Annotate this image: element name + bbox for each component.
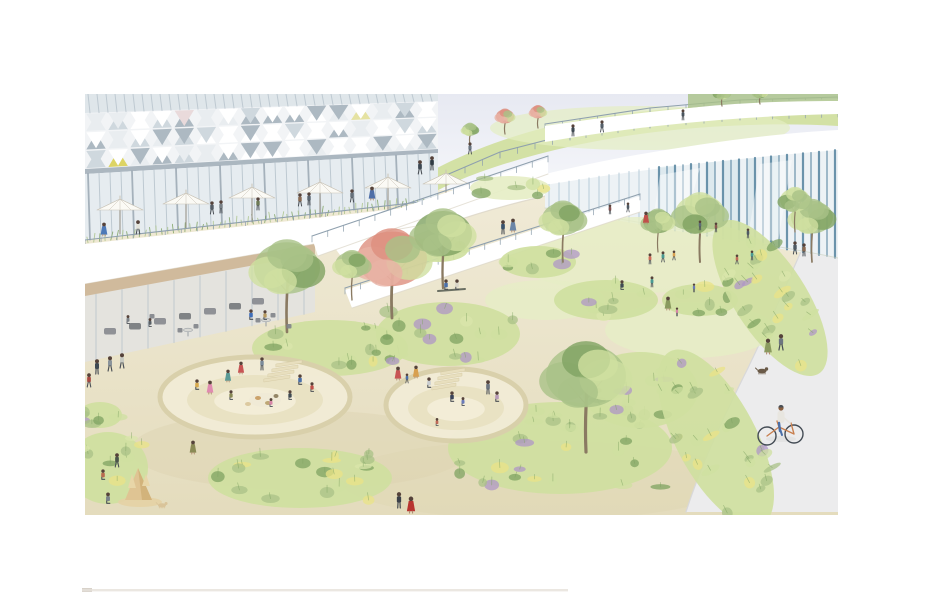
page-fold-line xyxy=(82,589,568,591)
person-head xyxy=(288,390,291,393)
person-body xyxy=(219,204,222,209)
person-head xyxy=(571,124,574,127)
grass-blade xyxy=(156,226,157,235)
grass-blade xyxy=(339,207,340,214)
cafe-chair xyxy=(256,318,261,323)
tree-foliage xyxy=(423,234,452,257)
person-body xyxy=(229,393,232,397)
tree-foliage xyxy=(468,124,476,130)
person-body xyxy=(673,253,676,257)
grass-blade xyxy=(82,406,83,412)
person-body xyxy=(427,381,431,386)
person-head xyxy=(682,109,685,112)
tree-foliage xyxy=(532,112,540,118)
person-head xyxy=(666,297,670,301)
tree-foliage xyxy=(340,265,357,278)
tree-foliage xyxy=(756,87,764,94)
person-body xyxy=(298,197,301,202)
tree-foliage xyxy=(797,218,818,234)
person-head xyxy=(802,243,805,246)
tree-foliage xyxy=(683,214,708,234)
picnic-item xyxy=(245,402,251,406)
person-body xyxy=(651,279,654,283)
tree-foliage xyxy=(759,88,766,93)
person-head xyxy=(779,334,783,338)
person-head xyxy=(120,353,124,357)
person-body xyxy=(682,112,685,116)
person-body xyxy=(751,253,754,257)
tree-foliage xyxy=(720,88,728,94)
person-body xyxy=(260,361,263,366)
tree-foliage xyxy=(503,110,512,117)
person-body xyxy=(249,313,253,318)
person-head xyxy=(450,391,453,394)
pit-floor-highlight xyxy=(427,397,485,421)
cafe-table xyxy=(184,328,193,332)
person-head xyxy=(310,382,313,385)
person-body xyxy=(106,496,110,501)
person-head xyxy=(226,370,229,373)
person-head xyxy=(444,279,447,282)
person-head xyxy=(409,497,414,502)
picnic-item xyxy=(255,396,261,400)
tree-foliage xyxy=(558,377,598,408)
interior-seat xyxy=(154,318,166,325)
person-body xyxy=(430,160,434,166)
person-head xyxy=(495,391,498,394)
person-body xyxy=(693,286,695,289)
person-body xyxy=(444,283,448,288)
grass-blade xyxy=(80,409,81,414)
person-head xyxy=(298,193,301,196)
person-body xyxy=(486,384,490,390)
person-body xyxy=(310,385,313,389)
person-body xyxy=(620,283,623,287)
tree-foliage xyxy=(716,93,724,99)
person-body xyxy=(210,205,213,210)
person-body xyxy=(101,473,105,478)
person-body xyxy=(715,225,718,229)
person-head xyxy=(676,308,678,310)
tree-foliage xyxy=(368,259,403,286)
cafe-chair xyxy=(271,313,276,318)
person-head xyxy=(270,398,273,401)
person-body xyxy=(802,247,805,252)
person-head xyxy=(600,120,603,123)
person-body xyxy=(397,496,401,502)
person-body xyxy=(115,457,119,463)
person-body xyxy=(108,360,112,366)
cyclist-jeans xyxy=(779,423,780,431)
tree-foliage xyxy=(785,200,800,212)
tree-foliage xyxy=(792,190,807,202)
person-head xyxy=(736,254,739,257)
person-body xyxy=(676,310,678,313)
interior-seat xyxy=(229,303,241,310)
person-body xyxy=(195,383,199,388)
dog-head xyxy=(165,502,168,505)
interior-seat xyxy=(104,328,116,335)
person-head xyxy=(427,377,430,380)
person-body xyxy=(263,313,266,317)
tree-foliage xyxy=(437,214,466,237)
person-body xyxy=(736,257,739,261)
tree-foliage xyxy=(695,198,720,218)
grass-blade xyxy=(99,234,100,242)
person-head xyxy=(662,251,665,254)
person-head xyxy=(468,142,471,145)
person-body xyxy=(793,245,796,250)
cafe-table xyxy=(262,318,271,322)
person-body xyxy=(288,393,291,397)
person-head xyxy=(501,220,505,224)
tree-foliage xyxy=(349,254,366,267)
person-head xyxy=(396,367,400,371)
person-head xyxy=(249,309,252,312)
tree-foliage xyxy=(536,107,544,113)
tree-foliage xyxy=(559,205,580,221)
tree-foliage xyxy=(655,212,670,224)
shrub-tuft xyxy=(78,406,90,418)
person-head xyxy=(370,187,374,191)
person-body xyxy=(662,254,665,258)
person-head xyxy=(102,223,106,227)
person-head xyxy=(260,357,263,360)
planting-bed xyxy=(208,448,392,508)
person-body xyxy=(609,207,612,211)
interior-seat xyxy=(179,313,191,320)
tree-foliage xyxy=(499,117,508,124)
person-body xyxy=(149,321,152,325)
grass-blade xyxy=(367,202,368,211)
person-body xyxy=(136,224,140,230)
person-head xyxy=(298,374,301,377)
cafe-chair xyxy=(178,328,183,333)
person-head xyxy=(651,276,654,279)
person-head xyxy=(673,250,676,253)
person-head xyxy=(747,228,750,231)
person-head xyxy=(239,362,242,365)
person-body xyxy=(649,256,652,260)
person-head xyxy=(455,279,458,282)
interior-seat xyxy=(204,308,216,315)
interior-seat xyxy=(252,298,264,305)
person-body xyxy=(298,378,302,383)
person-head xyxy=(418,160,422,164)
person-body xyxy=(462,400,465,404)
person-head xyxy=(699,220,702,223)
person-head xyxy=(511,219,515,223)
person-body xyxy=(747,231,750,235)
shrub-tuft xyxy=(72,444,90,452)
person-head xyxy=(609,204,612,207)
person-head xyxy=(136,220,140,224)
person-head xyxy=(436,418,439,421)
person-head xyxy=(195,379,198,382)
person-body xyxy=(95,363,99,369)
tree-foliage xyxy=(264,268,297,294)
person-head xyxy=(191,441,195,445)
person-head xyxy=(350,189,353,192)
person-head xyxy=(229,390,232,393)
person-head xyxy=(219,200,222,203)
person-head xyxy=(106,492,110,496)
person-head xyxy=(208,381,212,385)
person-head xyxy=(649,253,652,256)
person-head xyxy=(263,310,266,313)
person-body xyxy=(120,357,124,363)
person-head xyxy=(397,492,401,496)
person-body xyxy=(501,224,505,230)
person-body xyxy=(450,395,454,400)
picnic-item xyxy=(274,394,279,398)
person-head xyxy=(256,197,259,200)
person-head xyxy=(486,380,490,384)
person-head xyxy=(115,453,119,457)
planting-bed xyxy=(376,302,520,366)
person-head xyxy=(430,156,434,160)
person-body xyxy=(350,193,353,198)
cafe-chair xyxy=(287,324,292,329)
person-body xyxy=(495,395,499,400)
tree-foliage xyxy=(548,219,569,235)
person-body xyxy=(256,201,259,206)
person-body xyxy=(406,376,409,380)
person-head xyxy=(101,469,104,472)
person-head xyxy=(766,339,770,343)
person-head xyxy=(793,241,796,244)
person-body xyxy=(436,421,439,424)
person-body xyxy=(307,196,310,201)
person-head xyxy=(307,192,310,195)
tree-foliage xyxy=(648,222,663,234)
person-body xyxy=(127,318,130,322)
person-head xyxy=(620,280,623,283)
person-body xyxy=(627,205,630,209)
person-body xyxy=(699,223,702,227)
tree-foliage xyxy=(578,350,618,381)
person-head xyxy=(414,366,417,369)
person-head xyxy=(127,315,130,318)
cafe-chair xyxy=(150,314,155,319)
person-body xyxy=(600,123,603,128)
person-body xyxy=(455,283,459,288)
person-head xyxy=(644,212,647,215)
person-body xyxy=(468,145,471,150)
cyclist-shadow xyxy=(766,436,796,442)
person-head xyxy=(751,250,754,253)
tree-foliage xyxy=(280,246,313,272)
person-head xyxy=(95,359,99,363)
person-head xyxy=(149,318,152,321)
person-body xyxy=(779,338,783,344)
cafe-chair xyxy=(194,324,199,329)
person-head xyxy=(693,284,695,286)
person-body xyxy=(571,127,574,132)
interior-seat xyxy=(129,323,141,330)
grass-blade xyxy=(84,445,85,451)
person-body xyxy=(87,377,91,383)
person-head xyxy=(108,356,112,360)
person-head xyxy=(210,201,213,204)
illustration-page xyxy=(0,0,940,601)
park-illustration xyxy=(0,0,940,601)
tree-foliage xyxy=(717,86,727,93)
dog-head xyxy=(765,367,768,370)
tree-foliage xyxy=(755,93,762,98)
tree-foliage xyxy=(464,130,472,136)
person-head xyxy=(627,202,630,205)
person-head xyxy=(715,222,718,225)
person-body xyxy=(270,401,273,405)
person-head xyxy=(87,373,91,377)
person-head xyxy=(462,397,465,400)
person-head xyxy=(406,373,409,376)
person-body xyxy=(418,164,422,170)
tree-foliage xyxy=(808,203,829,219)
